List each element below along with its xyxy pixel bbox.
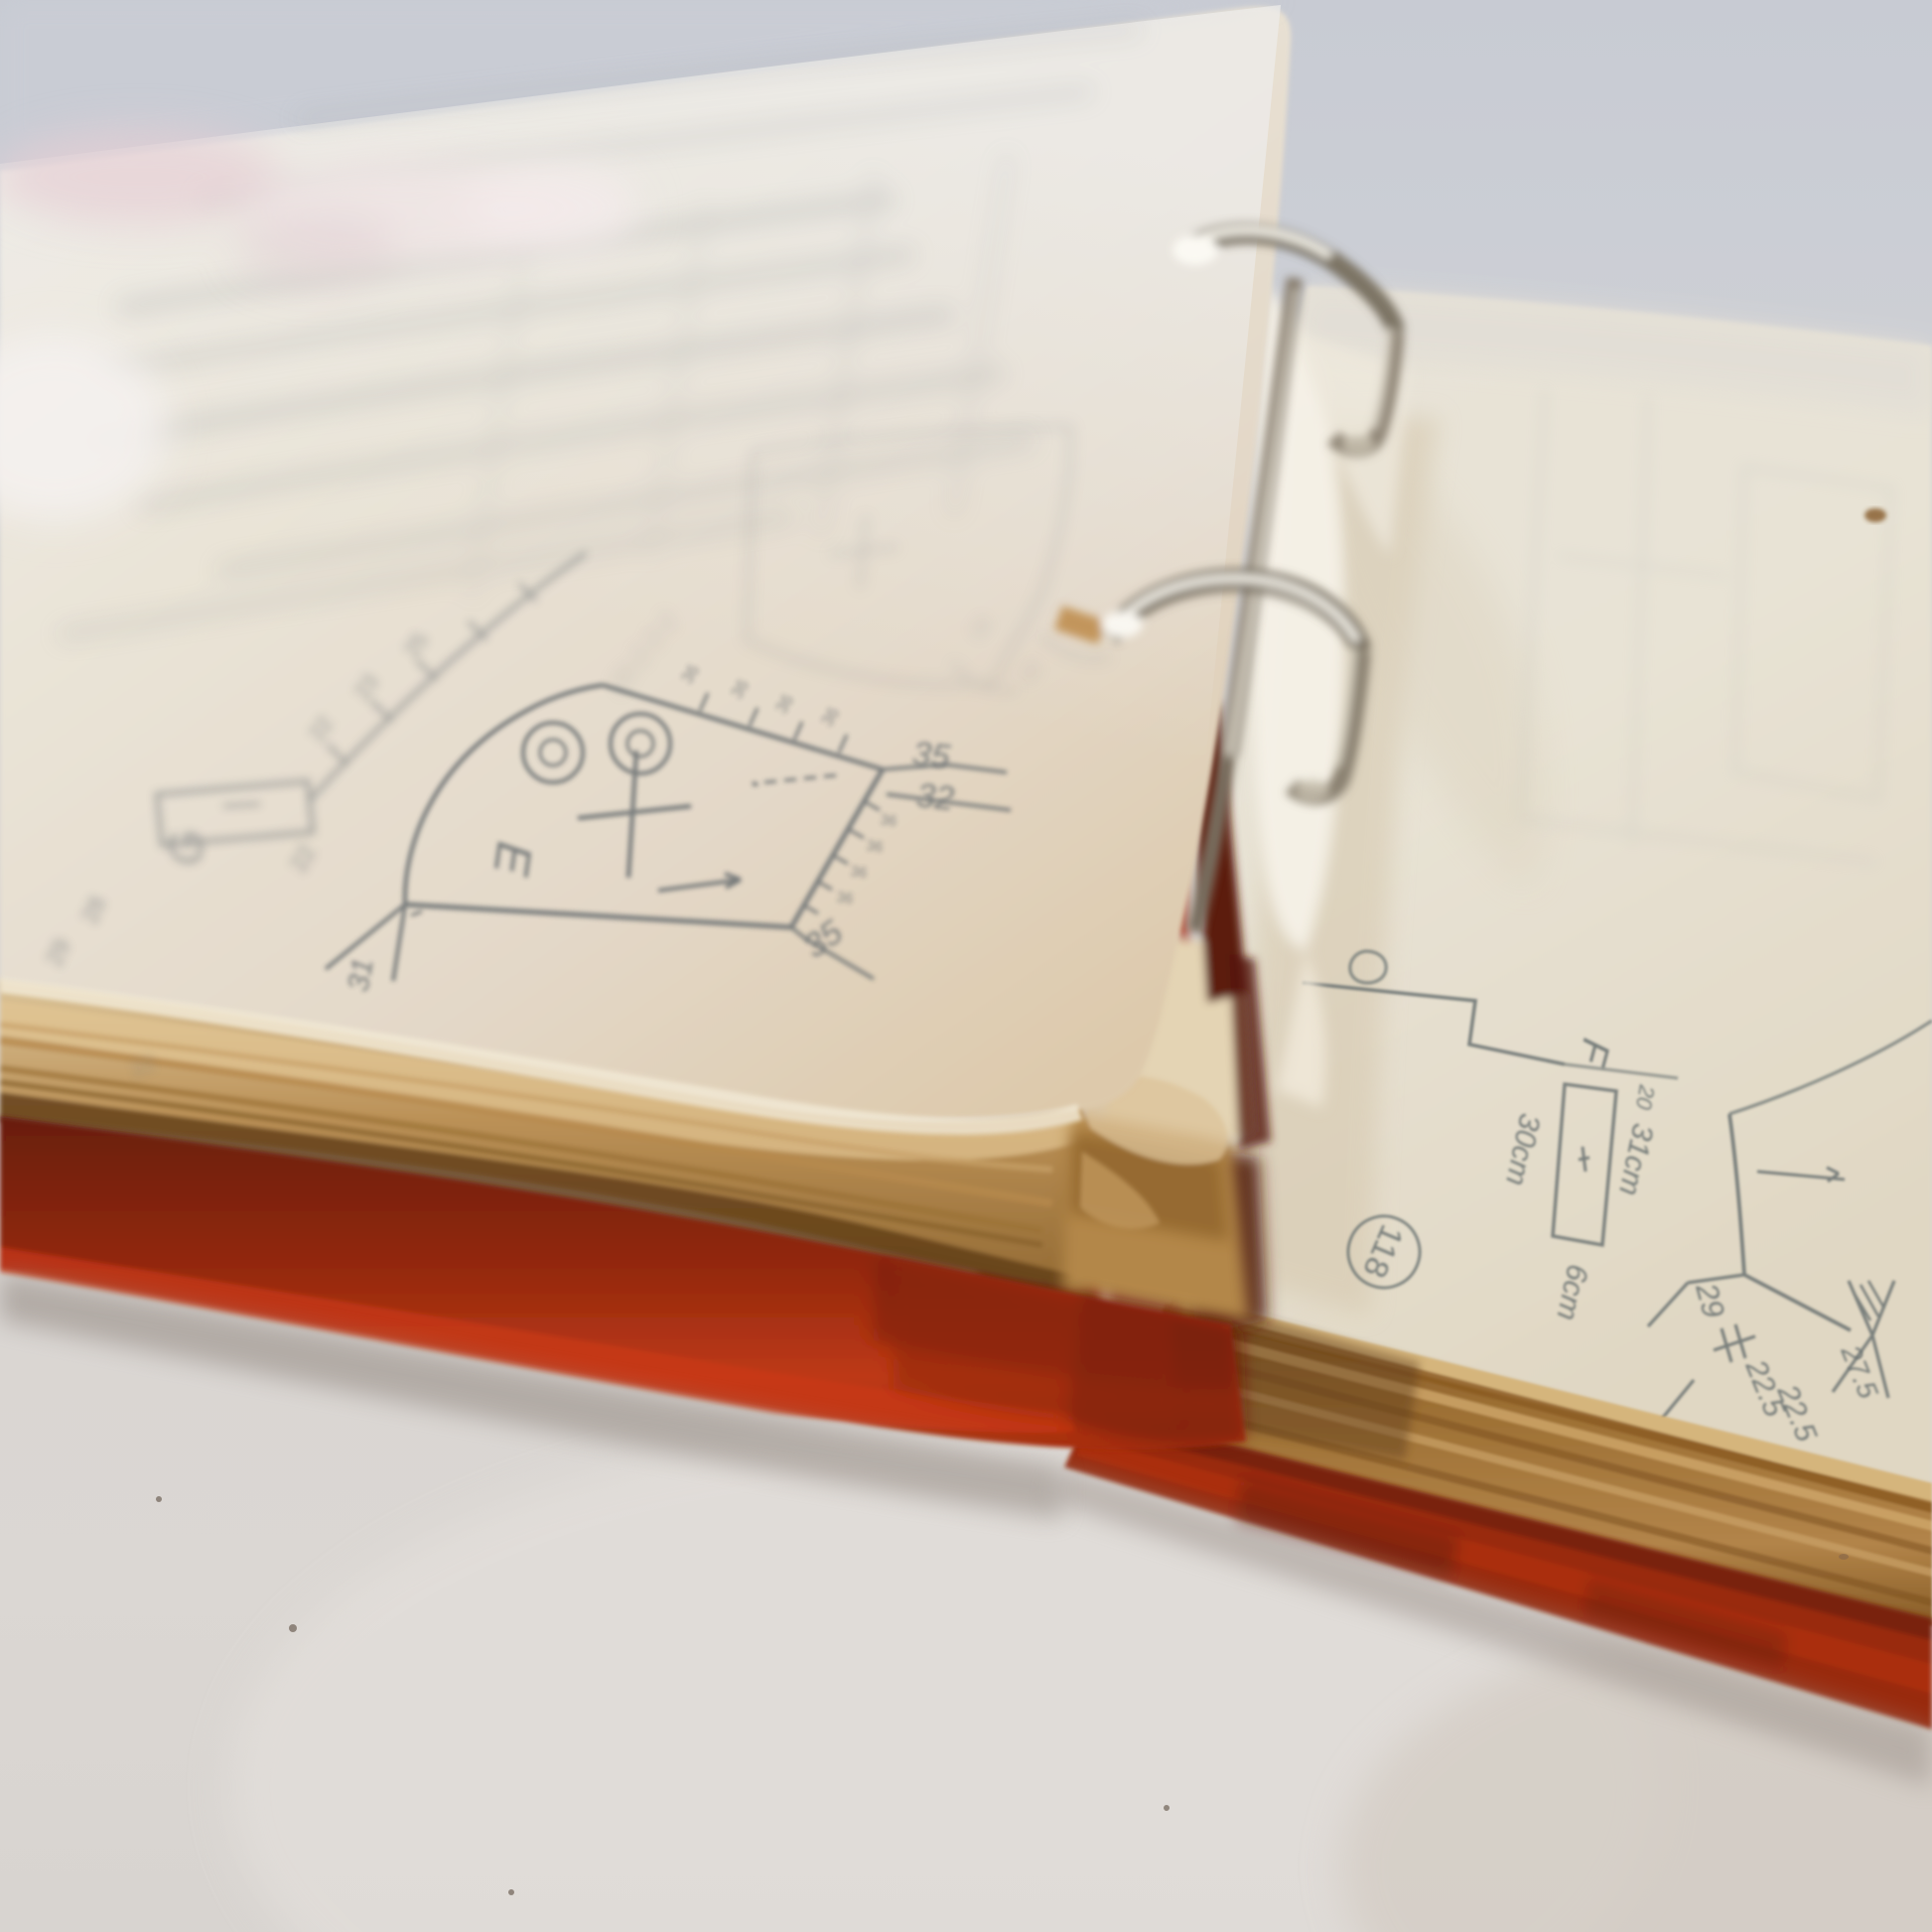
svg-text:G: G <box>158 827 212 868</box>
svg-text:20: 20 <box>1631 1082 1660 1112</box>
svg-text:36: 36 <box>835 889 854 907</box>
svg-text:36: 36 <box>849 863 868 882</box>
svg-text:32: 32 <box>914 776 956 818</box>
svg-text:35: 35 <box>910 735 952 776</box>
svg-text:31: 31 <box>342 956 379 995</box>
svg-text:36: 36 <box>865 837 884 856</box>
svg-text:36: 36 <box>879 811 897 830</box>
